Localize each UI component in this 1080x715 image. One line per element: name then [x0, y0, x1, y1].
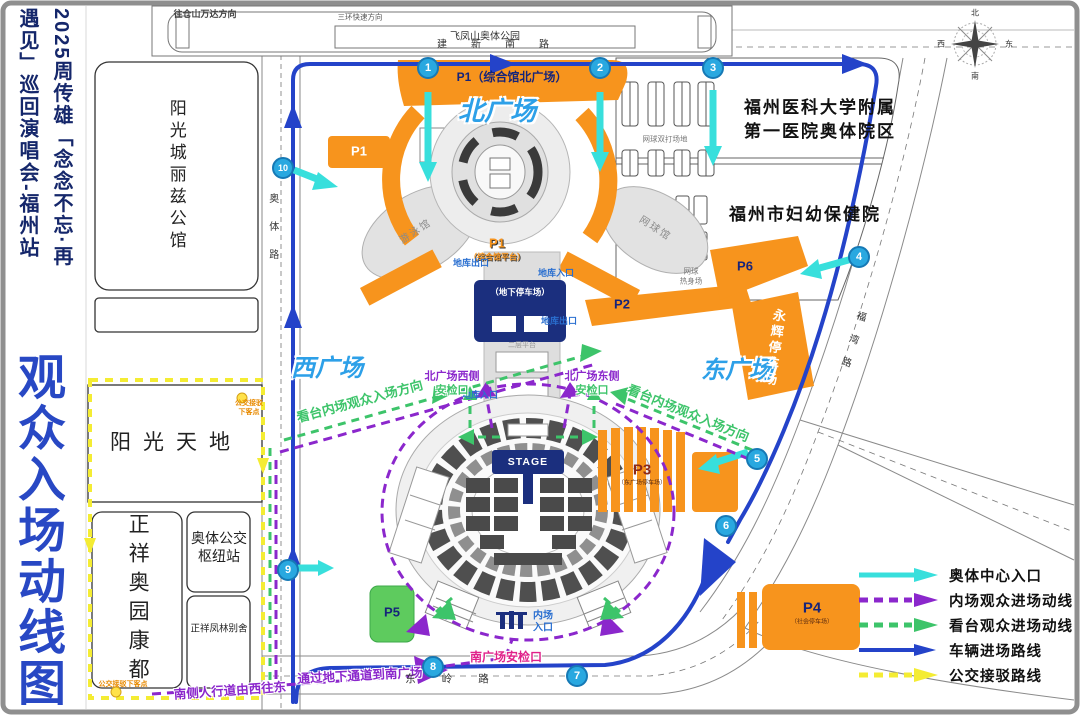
- legend-label: 车辆进场路线: [949, 640, 1042, 661]
- inner-entrance-gate-icon: [496, 611, 527, 629]
- p3-label: P3: [633, 461, 651, 478]
- gate-northeast-label: 北广场东侧: [565, 371, 620, 384]
- compass-icon: [951, 20, 999, 68]
- bus-drop-label-top-line1: 公交接驳: [235, 400, 263, 408]
- p2-label: P2: [614, 298, 630, 313]
- legend-label: 内场观众进场动线: [949, 590, 1073, 611]
- yellow-dashed-arrow-icon: [856, 667, 941, 683]
- garage-exit-label-b: 地库出口: [541, 316, 577, 326]
- compass-north-label: 北: [971, 8, 979, 17]
- building-bus-hub-line1: 奥体公交: [191, 530, 247, 546]
- platform-note-label: 二层平台: [508, 342, 536, 350]
- compass-south-label: 南: [971, 71, 979, 80]
- gate-south-label: 南广场安检口: [470, 651, 542, 665]
- route-marker-8: 8: [422, 656, 444, 678]
- strip-direction-label: 往仓山万达方向: [173, 9, 236, 19]
- west-plaza-label: 西广场: [291, 355, 363, 383]
- tennis-doubles-courts-label: 网球双打场地: [643, 136, 688, 145]
- route-marker-3: 3: [702, 57, 724, 79]
- road-aoti-label: 奥体路: [266, 193, 278, 277]
- p3-sublabel: （东广场停车场）: [618, 481, 666, 488]
- legend-row-vehicle-route: 车辆进场路线: [856, 641, 1076, 659]
- building-bus-hub-line2: 枢纽站: [198, 548, 240, 564]
- bus-drop-label-bottom: 公交接驳下客点: [99, 681, 148, 689]
- p1-building-label: P1: [351, 145, 367, 160]
- cyan-solid-arrow-icon: [856, 567, 941, 583]
- garage-exit-label-a: 地库出口: [453, 258, 489, 268]
- p4-sublabel: （社会停车场）: [791, 620, 833, 627]
- tennis-warmup-label-line1: 网球: [684, 268, 699, 277]
- poster-canvas: 2025周传雄「念念不忘·再 遇见」巡回演唱会-福州站 观众入场动线图 往仓山万…: [0, 0, 1080, 715]
- purple-dashed-arrow-icon: [856, 592, 941, 608]
- road-dongling-label: 东岭路: [405, 673, 515, 685]
- building-sunshine-world: 阳光天地: [110, 431, 242, 455]
- route-marker-1: 1: [417, 57, 439, 79]
- legend-label: 奥体中心入口: [949, 565, 1042, 586]
- hospital-name-line2: 第一医院奥体院区: [744, 122, 896, 142]
- p6-label: P6: [737, 260, 753, 275]
- building-zhengxiang: 正祥奥园康都: [125, 513, 149, 687]
- legend-label: 看台观众进场动线: [949, 615, 1073, 636]
- strip-sub-label: 三环快速方向: [338, 14, 383, 23]
- legend-label: 公交接驳路线: [949, 665, 1042, 686]
- p1-platform-label: P1: [489, 237, 505, 252]
- hospital-name-line1: 福州医科大学附属: [744, 98, 896, 118]
- stage-label: STAGE: [508, 456, 548, 468]
- route-marker-7: 7: [566, 665, 588, 687]
- road-jianxin-label: 建新南路: [437, 39, 573, 51]
- legend-row-inner-route: 内场观众进场动线: [856, 591, 1076, 609]
- compass-west-label: 西: [937, 39, 945, 48]
- bus-drop-label-top-line2: 下客点: [239, 409, 260, 417]
- route-marker-9: 9: [277, 559, 299, 581]
- p4-area: [737, 584, 860, 650]
- route-marker-2: 2: [589, 57, 611, 79]
- route-marker-4: 4: [848, 246, 870, 268]
- gate-northwest-check-label: 安检口: [436, 385, 469, 398]
- event-title: 2025周传雄「念念不忘·再 遇见」巡回演唱会-福州站: [10, 8, 78, 368]
- tennis-warmup-label-line2: 热身场: [680, 278, 703, 287]
- p4-label: P4: [803, 599, 821, 616]
- legend: 奥体中心入口 内场观众进场动线 看台观众进场动线 车辆进场路线: [856, 566, 1076, 684]
- p5-label: P5: [384, 606, 400, 621]
- legend-row-entrance: 奥体中心入口: [856, 566, 1076, 584]
- maternity-hospital-name: 福州市妇幼保健院: [729, 205, 881, 225]
- blue-solid-arrow-icon: [856, 642, 941, 658]
- gate-northeast-check-label: 安检口: [576, 385, 609, 398]
- north-plaza-label: 北广场: [458, 97, 536, 127]
- inner-entrance-label-line1: 内场: [533, 610, 553, 622]
- compass-east-label: 东: [1005, 39, 1013, 48]
- green-dashed-arrow-icon: [856, 617, 941, 633]
- p1-north-label: P1（综合馆北广场）: [457, 71, 568, 85]
- building-fenglin: 正祥凤林别舍: [190, 625, 247, 636]
- underground-parking-label: （地下停车场）: [490, 288, 550, 298]
- legend-row-bus-route: 公交接驳路线: [856, 666, 1076, 684]
- page-title: 观众入场动线图: [12, 352, 60, 709]
- gate-northwest-label: 北广场西侧: [425, 371, 480, 384]
- route-marker-6: 6: [715, 515, 737, 537]
- inner-entrance-label-line2: 入口: [533, 622, 553, 634]
- event-title-line1: 2025周传雄「念念不忘·再: [44, 8, 78, 368]
- route-marker-10: 10: [272, 157, 294, 179]
- legend-row-stand-route: 看台观众进场动线: [856, 616, 1076, 634]
- event-title-line2: 遇见」巡回演唱会-福州站: [10, 8, 44, 368]
- route-marker-5: 5: [746, 448, 768, 470]
- garage-entrance-label-a: 地库入口: [538, 268, 574, 278]
- building-lizi-mansion: 阳光城丽兹公馆: [166, 99, 186, 253]
